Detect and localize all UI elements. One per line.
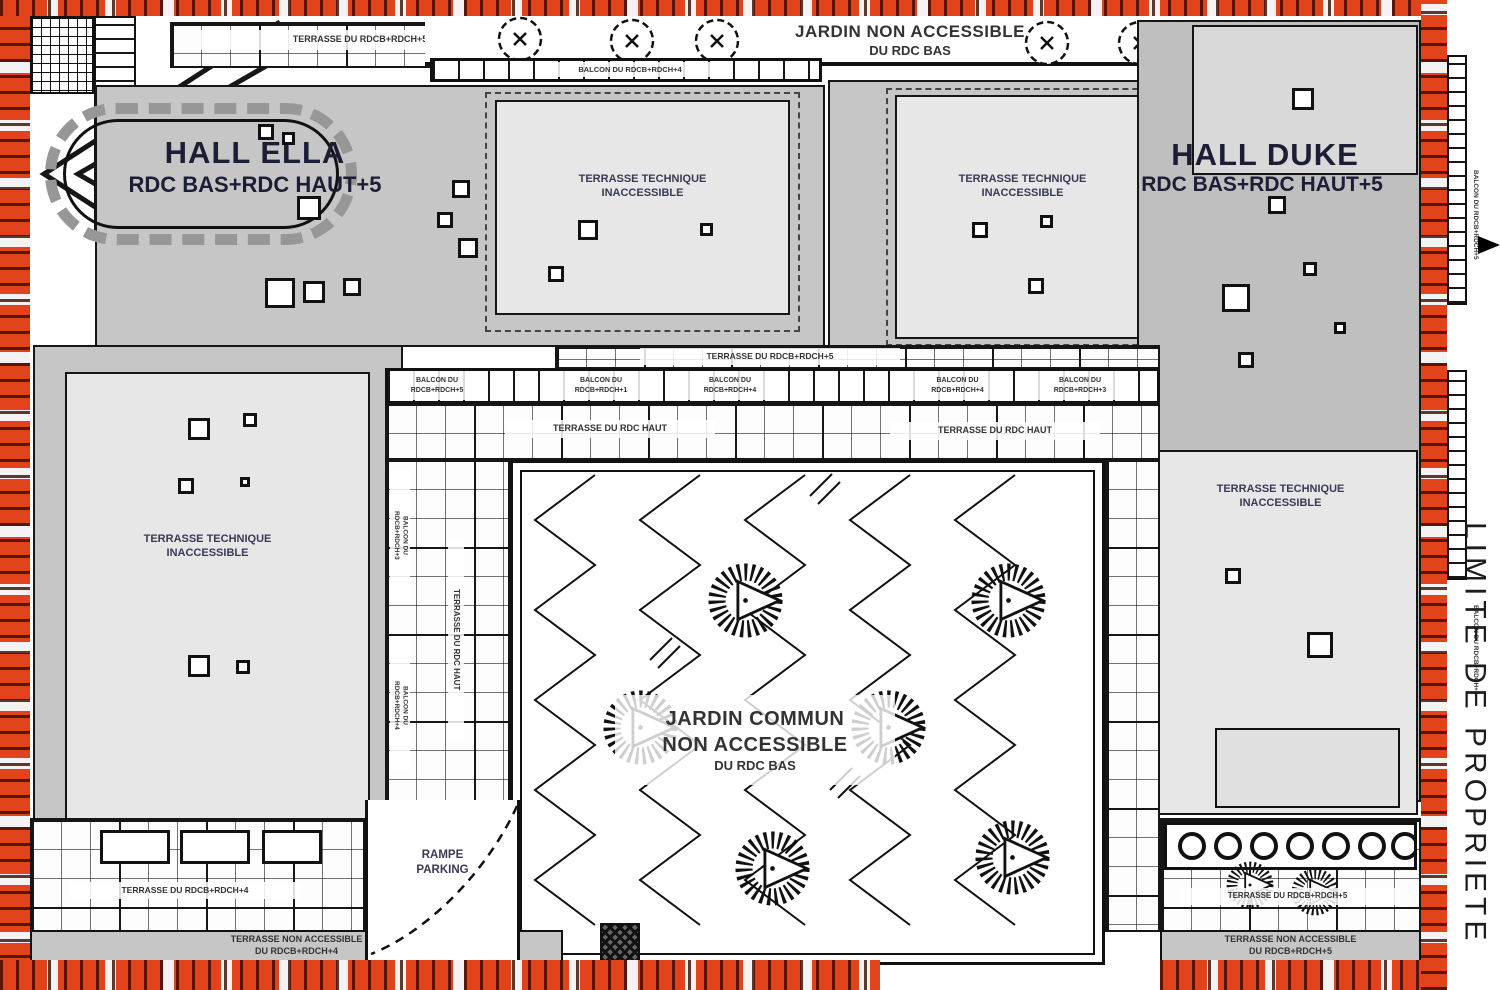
chip-bottom: RDCB+RDCH+3 xyxy=(1054,386,1107,395)
hall-ella-title: HALL ELLA xyxy=(120,136,390,170)
roof-vent xyxy=(1222,284,1250,312)
roof-vent xyxy=(188,655,210,677)
planter-box xyxy=(180,830,250,864)
terrasse-technique-ella xyxy=(495,100,790,315)
roof-vent xyxy=(1334,322,1346,334)
duke-inner-frame xyxy=(1215,728,1400,808)
property-limit-label: LIMITE DE PROPRIETE xyxy=(1452,478,1498,990)
balcony-chip: BALCON DU RDCB+RDCH+4 xyxy=(680,371,780,400)
property-limit-top xyxy=(0,0,1447,16)
tt-line2: INACCESSIBLE xyxy=(1240,496,1322,510)
label-text: TERRASSE DU RDC HAUT xyxy=(938,425,1052,437)
hall-duke-levels: RDC BAS+RDC HAUT+5 xyxy=(1122,172,1402,198)
tt-line1: TERRASSE TECHNIQUE xyxy=(959,172,1087,186)
balcony-chip: BALCON DU RDCB+RDCH+3 xyxy=(1030,371,1130,400)
chip-top: BALCON DU xyxy=(1059,376,1101,385)
label-text: BALCON DU RDCB+RDCH+4 xyxy=(578,65,681,75)
terrace-strip-mid-label: TERRASSE DU RDCB+RDCH+5 xyxy=(640,348,900,365)
hall-ella-name: HALL ELLA xyxy=(165,133,346,173)
balcony-chip: BALCON DU RDCB+RDCH+5 xyxy=(393,371,481,400)
property-limit-right xyxy=(1421,0,1447,990)
label-text: TERRASSE DU RDC HAUT xyxy=(451,589,461,690)
tt-line1: TERRASSE TECHNIQUE xyxy=(144,532,272,546)
roof-vent xyxy=(1268,196,1286,214)
chip-bottom: RDCB+RDCH+1 xyxy=(575,386,628,395)
tt-line1: TERRASSE TECHNIQUE xyxy=(1217,482,1345,496)
tna-line1: TERRASSE NON ACCESSIBLE xyxy=(231,934,363,946)
terrace-column-left-label: TERRASSE DU RDC HAUT xyxy=(448,540,464,740)
chip-top: BALCON DU xyxy=(400,516,408,555)
terrasse-technique-ella-label: TERRASSE TECHNIQUE INACCESSIBLE xyxy=(510,168,775,204)
site-plan-canvas: TERRASSE DU RDCB+RDCH+5 JARDIN NON ACCES… xyxy=(0,0,1500,990)
roof-vent xyxy=(578,220,598,240)
terrace-rdc-haut-label-left: TERRASSE DU RDC HAUT xyxy=(505,420,715,438)
jc-line3: DU RDC BAS xyxy=(714,758,796,775)
roof-vent xyxy=(1040,215,1053,228)
jc-line2: NON ACCESSIBLE xyxy=(662,732,847,758)
terrasse-technique-center-label: TERRASSE TECHNIQUE INACCESSIBLE xyxy=(890,168,1155,204)
terrasse-technique-center xyxy=(895,95,1151,339)
tt-line2: INACCESSIBLE xyxy=(602,186,684,200)
vent-grate xyxy=(600,923,640,963)
roof-vent xyxy=(240,477,250,487)
roof-vent xyxy=(258,124,274,140)
balcony-strip-ella-top-label: BALCON DU RDCB+RDCH+4 xyxy=(545,62,715,77)
roof-vent xyxy=(297,196,321,220)
chip-top: BALCON DU xyxy=(580,376,622,385)
roof-vent xyxy=(1225,568,1241,584)
roof-vent xyxy=(548,266,564,282)
planter-box xyxy=(262,830,322,864)
balcony-label-right: BALCON DU RDCB+RDCH+5 xyxy=(1468,150,1482,280)
hall-ella-levels-text: RDC BAS+RDC HAUT+5 xyxy=(128,171,381,200)
roof-vent xyxy=(343,278,361,296)
balcony-chip: BALCON DU RDCB+RDCH+4 xyxy=(905,371,1010,400)
roof-vent xyxy=(178,478,194,494)
roof-vent xyxy=(458,238,478,258)
tt-line1: TERRASSE TECHNIQUE xyxy=(579,172,707,186)
label-text: LIMITE DE PROPRIETE xyxy=(1456,522,1495,945)
rampe-curve xyxy=(365,800,523,962)
corner-grid-paving xyxy=(30,16,94,94)
jardin-commun-label: JARDIN COMMUN NON ACCESSIBLE DU RDC BAS xyxy=(615,695,895,785)
chip-top: BALCON DU xyxy=(709,376,751,385)
label-text: TERRASSE DU RDCB+RDCH+4 xyxy=(121,885,248,896)
terrace-column-right xyxy=(1105,458,1160,932)
chip-bottom: RDCB+RDCH+4 xyxy=(704,386,757,395)
roof-vent xyxy=(243,413,257,427)
palm-icon xyxy=(744,840,807,897)
chip-bottom: RDCB+RDCH+3 xyxy=(392,511,400,560)
tna-line2: DU RDCB+RDCH+4 xyxy=(255,946,338,958)
terrace-bottom-right-label: TERRASSE DU RDCB+RDCH+5 xyxy=(1180,888,1395,905)
roof-vent xyxy=(188,418,210,440)
palm-icon xyxy=(980,572,1043,629)
palm-icon xyxy=(984,829,1047,886)
balcony-chip-vertical: BALCON DU RDCB+RDCH+3 xyxy=(390,470,410,600)
terrace-non-accessible-right: TERRASSE NON ACCESSIBLE DU RDCB+RDCH+5 xyxy=(1160,930,1421,962)
roof-vent xyxy=(972,222,988,238)
chip-bottom: RDCB+RDCH+5 xyxy=(411,386,464,395)
chip-bottom: RDCB+RDCH+4 xyxy=(392,681,400,730)
balcony-chip-vertical: BALCON DU RDCB+RDCH+4 xyxy=(390,640,410,770)
jardin-nord-line2: DU RDC BAS xyxy=(869,43,951,60)
property-limit-bottom-left xyxy=(0,960,880,990)
jardin-nord-line1: JARDIN NON ACCESSIBLE xyxy=(795,21,1025,43)
hall-ella-levels: RDC BAS+RDC HAUT+5 xyxy=(100,172,410,198)
property-limit-left xyxy=(0,0,30,990)
hall-duke-levels-text: RDC BAS+RDC HAUT+5 xyxy=(1141,171,1383,198)
balcony-ladder-right-top xyxy=(1447,55,1467,305)
balcony-chip: BALCON DU RDCB+RDCH+1 xyxy=(545,371,657,400)
terrace-bottom-left-label: TERRASSE DU RDCB+RDCH+4 xyxy=(70,882,300,899)
roof-vent xyxy=(282,132,295,145)
roof-vent xyxy=(452,180,470,198)
tna-line1: TERRASSE NON ACCESSIBLE xyxy=(1225,934,1357,946)
roof-vent xyxy=(437,212,453,228)
terrasse-technique-left-label: TERRASSE TECHNIQUE INACCESSIBLE xyxy=(75,528,340,564)
palm-pair-bottom-right xyxy=(1210,850,1370,920)
roof-vent xyxy=(1303,262,1317,276)
planter-box xyxy=(100,830,170,864)
jc-line1: JARDIN COMMUN xyxy=(666,706,845,732)
roof-vent xyxy=(236,660,250,674)
label-text: TERRASSE DU RDCB+RDCH+5 xyxy=(706,351,833,362)
tt-line2: INACCESSIBLE xyxy=(982,186,1064,200)
palm-icon xyxy=(717,572,780,629)
label-text: TERRASSE DU RDC HAUT xyxy=(553,423,667,435)
hall-duke-name: HALL DUKE xyxy=(1171,135,1359,175)
tna-line2: DU RDCB+RDCH+5 xyxy=(1249,946,1332,958)
roof-vent xyxy=(1307,632,1333,658)
terrace-rdc-haut-label-right: TERRASSE DU RDC HAUT xyxy=(890,422,1100,440)
roof-vent xyxy=(303,281,325,303)
property-limit-bottom-right xyxy=(1160,960,1447,990)
terrasse-technique-left xyxy=(65,372,370,820)
roof-vent xyxy=(700,223,713,236)
chip-bottom: RDCB+RDCH+4 xyxy=(931,386,984,395)
chip-top: BALCON DU xyxy=(416,376,458,385)
chip-top: BALCON DU xyxy=(400,686,408,725)
chip-top: BALCON DU xyxy=(937,376,979,385)
tt-line2: INACCESSIBLE xyxy=(167,546,249,560)
roof-vent xyxy=(1292,88,1314,110)
north-arrow-icon xyxy=(1478,236,1500,254)
roof-vent xyxy=(1028,278,1044,294)
hall-duke-title: HALL DUKE xyxy=(1145,138,1385,172)
roof-vent xyxy=(1238,352,1254,368)
roof-vent xyxy=(265,278,295,308)
terrasse-technique-duke-label: TERRASSE TECHNIQUE INACCESSIBLE xyxy=(1148,478,1413,514)
label-text: TERRASSE DU RDCB+RDCH+5 xyxy=(293,34,428,46)
jardin-nord-label: JARDIN NON ACCESSIBLE DU RDC BAS xyxy=(760,18,1060,62)
label-text: TERRASSE DU RDCB+RDCH+5 xyxy=(1228,891,1348,901)
